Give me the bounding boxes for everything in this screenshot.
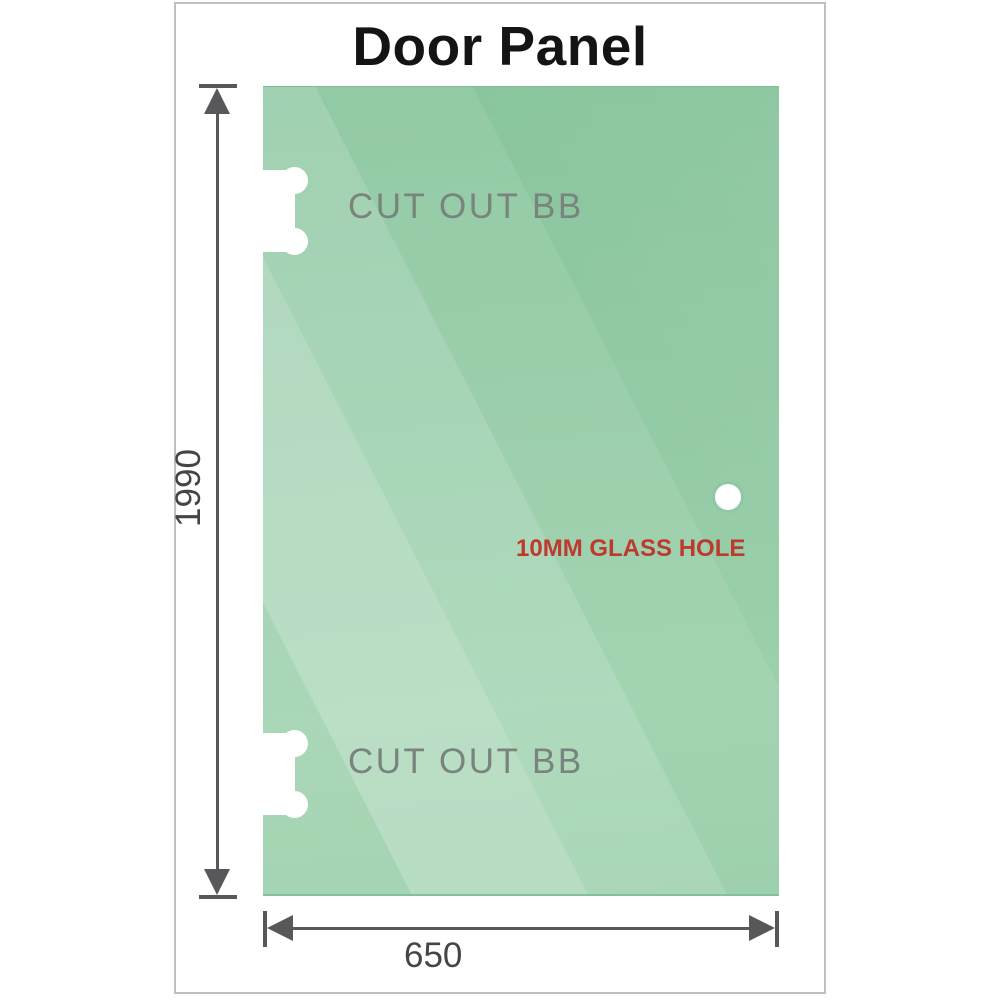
cutout-label-top: CUT OUT BB	[348, 189, 584, 224]
arrow-right-icon	[749, 915, 775, 941]
glass-hole	[715, 484, 741, 510]
cutout-label-bottom: CUT OUT BB	[348, 744, 584, 779]
page-title: Door Panel	[174, 14, 826, 78]
hinge-cutout-top	[263, 170, 295, 252]
diagram-canvas: Door Panel CUT OUT BB CUT OUT BB 10MM GL…	[0, 0, 1000, 1000]
dimension-cap-right	[775, 911, 779, 947]
width-dimension-line	[280, 927, 762, 930]
hinge-cutout-bottom	[263, 733, 295, 815]
arrow-left-icon	[267, 915, 293, 941]
arrow-down-icon	[204, 869, 230, 895]
height-dimension-value: 1990	[169, 449, 209, 527]
glass-hole-label: 10MM GLASS HOLE	[516, 536, 745, 562]
width-dimension-value: 650	[404, 938, 462, 973]
arrow-up-icon	[204, 88, 230, 114]
height-dimension-line	[216, 94, 219, 872]
dimension-cap-bottom	[199, 895, 237, 899]
